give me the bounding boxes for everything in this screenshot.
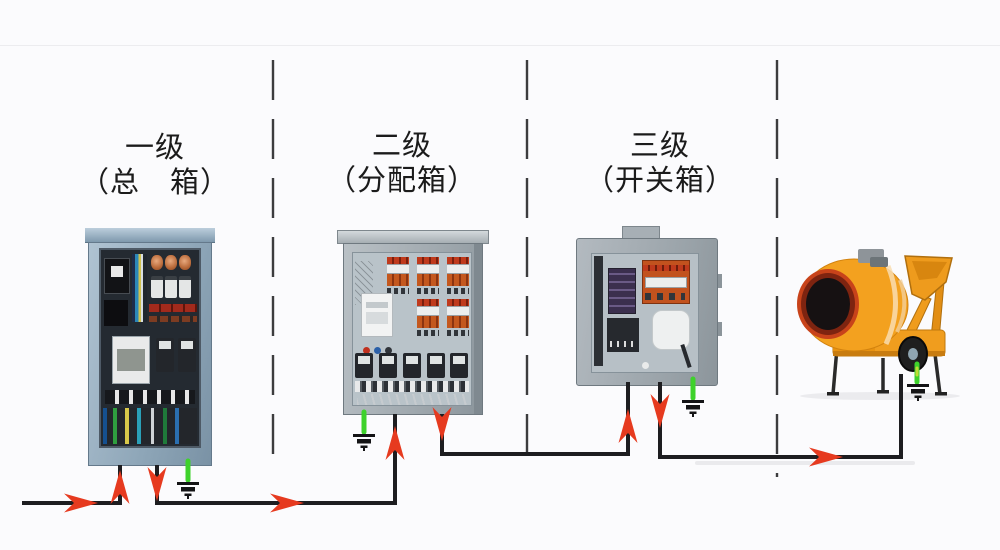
cabinet-top-cap xyxy=(85,228,215,243)
branch-breaker xyxy=(427,353,445,378)
terminal-strip xyxy=(105,390,195,404)
arrow-down-icon xyxy=(651,394,670,428)
main-breaker xyxy=(112,336,150,384)
door-edge xyxy=(474,244,482,414)
ground-icon xyxy=(353,434,375,451)
arrow-right-icon xyxy=(64,494,98,513)
arrow-down-icon xyxy=(148,467,167,501)
label-level3-title: 三级 xyxy=(540,129,780,164)
cable-shadow xyxy=(695,461,915,465)
transformer-coils xyxy=(151,255,197,271)
contactor xyxy=(447,299,469,335)
mixer-wheel xyxy=(899,337,927,371)
cabinet-top-cap xyxy=(337,230,489,244)
label-level1-box: （总 箱） xyxy=(35,166,275,201)
contactor xyxy=(642,260,690,304)
switch-box-cabinet xyxy=(576,226,722,384)
contactor xyxy=(447,257,469,293)
ground-icon xyxy=(177,482,199,499)
contactor xyxy=(417,299,439,335)
wire-duct xyxy=(594,256,603,366)
fuse-row xyxy=(151,276,197,296)
kwh-meter xyxy=(104,258,130,294)
branch-breaker xyxy=(379,353,397,378)
leakage-protector xyxy=(607,318,639,352)
cabinet-interior xyxy=(591,253,699,373)
contactor xyxy=(387,257,409,293)
cable-bundle xyxy=(103,408,197,444)
outgoing-wires xyxy=(357,394,467,405)
wire-duct xyxy=(132,254,147,322)
arrow-right-icon xyxy=(809,448,843,467)
branch-breaker xyxy=(403,353,421,378)
cabinet-interior xyxy=(352,252,472,406)
cabinet-body xyxy=(576,238,718,386)
drum-opening xyxy=(797,269,859,339)
terminal-strip xyxy=(355,381,469,392)
label-level2-title: 二级 xyxy=(282,129,522,164)
bus-bars-2 xyxy=(149,316,197,322)
top-divider-line xyxy=(0,45,1000,46)
arrow-up-icon xyxy=(111,470,130,504)
ground-icon xyxy=(682,400,704,417)
door-latch xyxy=(642,362,649,369)
concrete-mixer xyxy=(788,248,968,400)
arrow-up-icon xyxy=(386,426,405,460)
bus-bars xyxy=(149,304,197,312)
arrow-right-icon xyxy=(270,494,304,513)
label-level2: 二级 （分配箱） xyxy=(282,129,522,199)
label-level2-box: （分配箱） xyxy=(282,164,522,199)
branch-breaker xyxy=(156,338,174,372)
cabinet-body xyxy=(88,242,212,466)
relay-block xyxy=(104,300,128,326)
main-distribution-cabinet xyxy=(85,228,215,466)
three-level-power-distribution-diagram: 一级 （总 箱） 二级 （分配箱） 三级 （开关箱） xyxy=(0,0,1000,550)
kwh-meter xyxy=(361,293,393,337)
label-level3: 三级 （开关箱） xyxy=(540,129,780,199)
branch-breaker xyxy=(450,353,468,378)
contactor xyxy=(417,257,439,293)
label-level1-title: 一级 xyxy=(35,131,275,166)
cabinet-body xyxy=(343,243,483,415)
cabinet-interior xyxy=(99,248,201,448)
cable-supply-to-main-box xyxy=(22,465,120,503)
distribution-cabinet xyxy=(337,228,489,416)
branch-breaker xyxy=(178,338,196,372)
branch-breaker xyxy=(355,353,373,378)
arrow-up-icon xyxy=(619,409,638,443)
breaker-stack xyxy=(608,268,636,314)
label-level3-box: （开关箱） xyxy=(540,164,780,199)
label-level1: 一级 （总 箱） xyxy=(35,131,275,201)
